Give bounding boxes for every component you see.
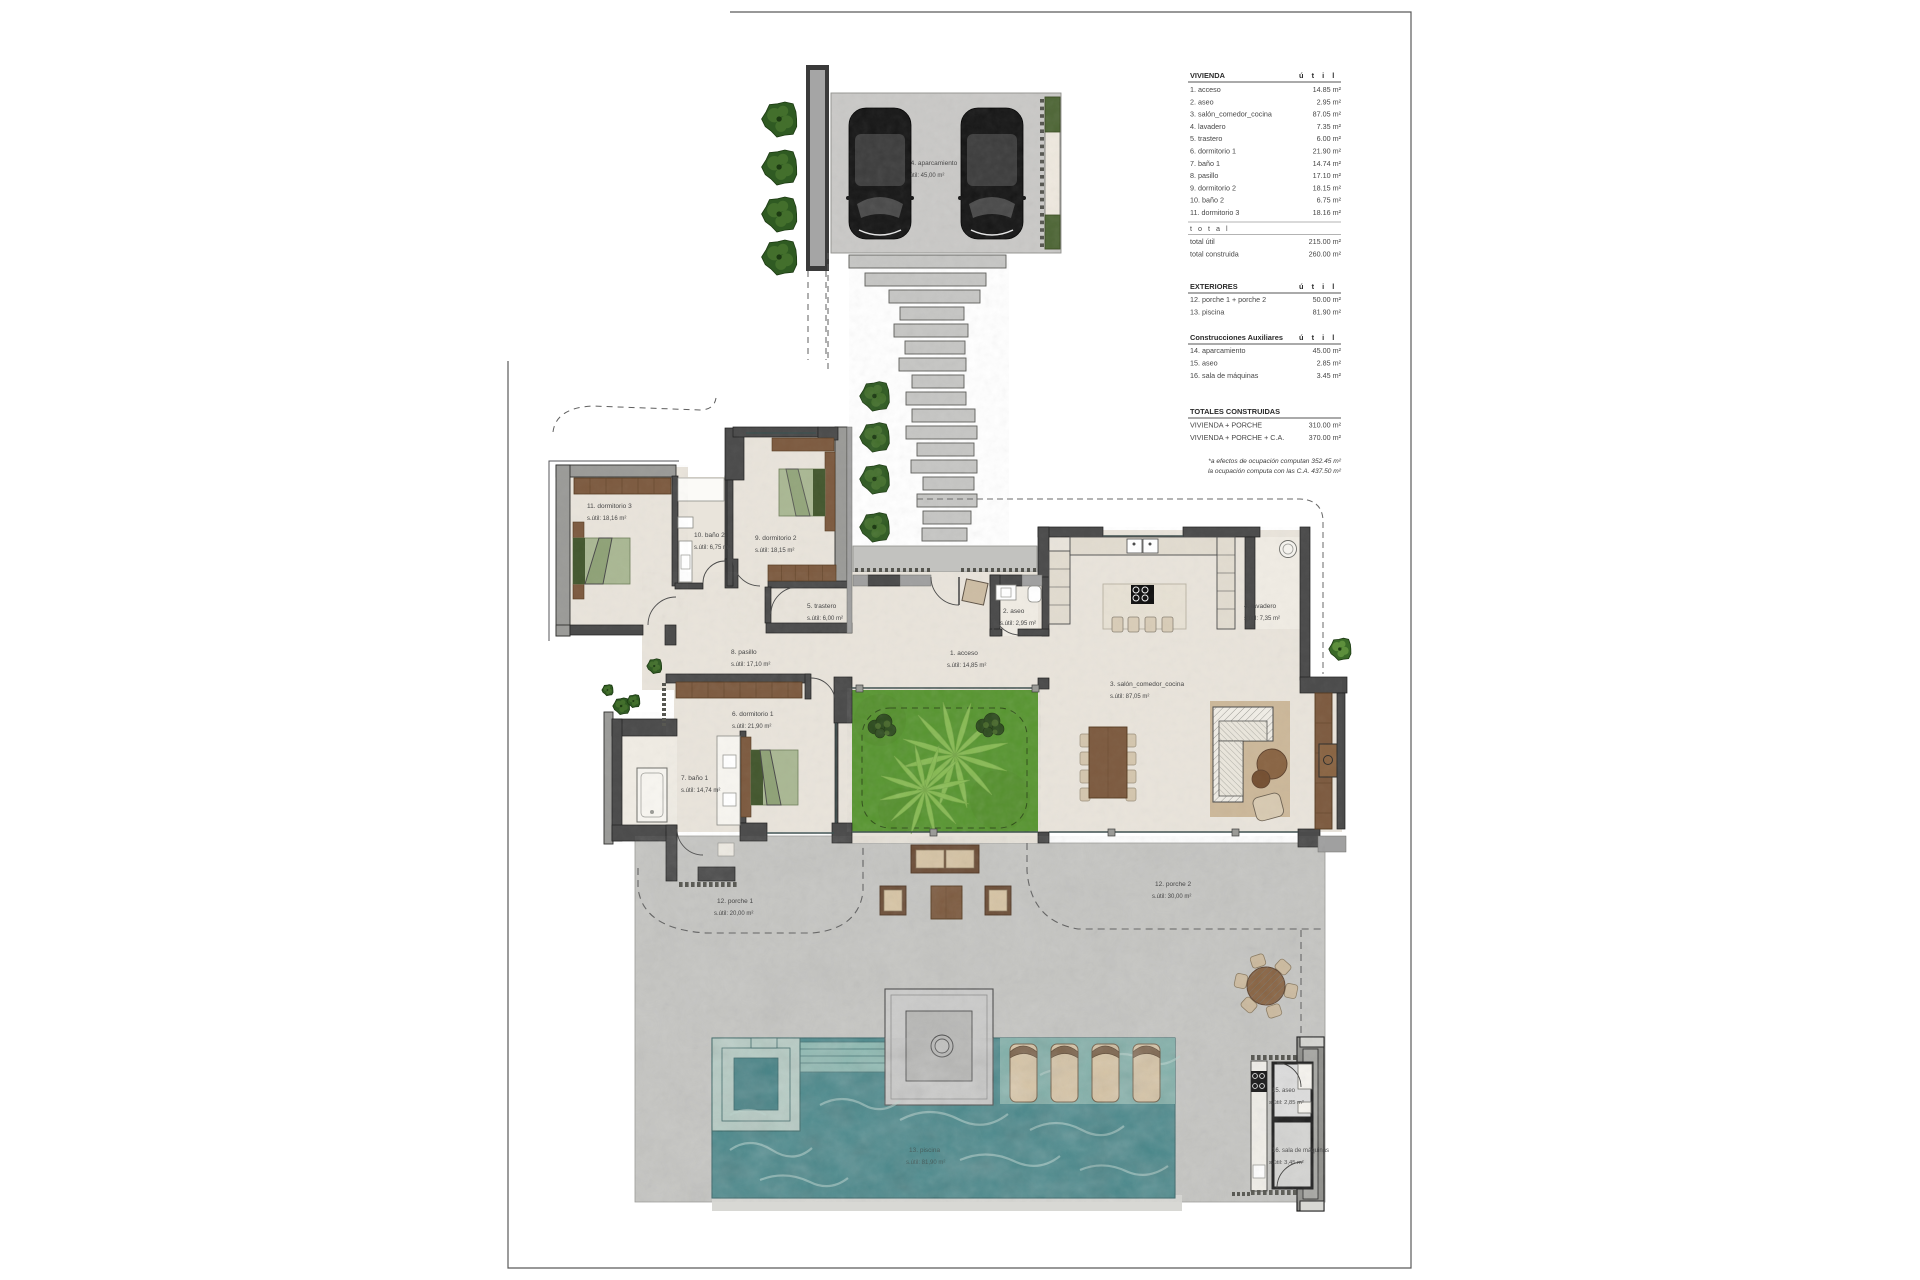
svg-text:s.útil: 18,16 m²: s.útil: 18,16 m² [587, 516, 626, 522]
svg-text:6.75 m²: 6.75 m² [1317, 196, 1342, 205]
svg-text:14.74 m²: 14.74 m² [1313, 159, 1342, 168]
svg-text:s.útil: 6,75 m²: s.útil: 6,75 m² [694, 545, 730, 551]
svg-text:87.05 m²: 87.05 m² [1313, 110, 1342, 119]
svg-text:1. acceso: 1. acceso [1190, 85, 1221, 94]
svg-text:Construcciones Auxiliares: Construcciones Auxiliares [1190, 333, 1283, 342]
svg-text:16. sala de máquinas: 16. sala de máquinas [1190, 371, 1259, 380]
svg-text:7. baño 1: 7. baño 1 [1190, 159, 1220, 168]
svg-text:6. dormitorio 1: 6. dormitorio 1 [732, 711, 774, 718]
svg-text:s.útil: 2,95 m²: s.útil: 2,95 m² [1000, 621, 1036, 627]
svg-text:14. aparcamiento: 14. aparcamiento [1190, 346, 1246, 355]
svg-text:11. dormitorio 3: 11. dormitorio 3 [587, 503, 632, 510]
svg-text:1. acceso: 1. acceso [950, 650, 978, 657]
svg-text:ú t i l: ú t i l [1299, 282, 1337, 291]
svg-text:9. dormitorio 2: 9. dormitorio 2 [1190, 183, 1236, 192]
svg-text:7. baño 1: 7. baño 1 [681, 775, 708, 782]
svg-text:ú t i l: ú t i l [1299, 71, 1337, 80]
svg-text:10. baño 2: 10. baño 2 [1190, 196, 1224, 205]
svg-text:VIVIENDA + PORCHE: VIVIENDA + PORCHE [1190, 421, 1262, 430]
svg-text:4. lavadero: 4. lavadero [1190, 122, 1226, 131]
svg-text:total construida: total construida [1190, 250, 1239, 259]
svg-text:260.00 m²: 260.00 m² [1309, 250, 1342, 259]
svg-text:7.35 m²: 7.35 m² [1317, 122, 1342, 131]
svg-text:3. salón_comedor_cocina: 3. salón_comedor_cocina [1110, 681, 1184, 688]
svg-text:s.útil: 14,85 m²: s.útil: 14,85 m² [947, 663, 986, 669]
svg-text:11. dormitorio 3: 11. dormitorio 3 [1190, 208, 1239, 217]
svg-text:8. pasillo: 8. pasillo [1190, 171, 1218, 180]
svg-text:6.00 m²: 6.00 m² [1317, 134, 1342, 143]
svg-text:la ocupación computa con las C: la ocupación computa con las C.A. 437.50… [1208, 468, 1342, 475]
svg-text:12. porche 1 + porche 2: 12. porche 1 + porche 2 [1190, 295, 1266, 304]
svg-text:TOTALES CONSTRUIDAS: TOTALES CONSTRUIDAS [1190, 407, 1280, 416]
svg-text:t o t a l: t o t a l [1190, 224, 1230, 233]
svg-text:VIVIENDA: VIVIENDA [1190, 71, 1226, 80]
svg-text:5. trastero: 5. trastero [1190, 134, 1222, 143]
svg-text:EXTERIORES: EXTERIORES [1190, 282, 1238, 291]
svg-text:s.útil: 18,15 m²: s.útil: 18,15 m² [755, 548, 794, 554]
svg-text:9. dormitorio 2: 9. dormitorio 2 [755, 535, 797, 542]
svg-text:14.85 m²: 14.85 m² [1313, 85, 1342, 94]
svg-text:6. dormitorio 1: 6. dormitorio 1 [1190, 147, 1236, 156]
svg-text:s.útil: 6,00 m²: s.útil: 6,00 m² [807, 616, 843, 622]
svg-text:s.útil: 20,00 m²: s.útil: 20,00 m² [714, 911, 753, 917]
svg-text:total útil: total útil [1190, 237, 1215, 246]
svg-text:18.16 m²: 18.16 m² [1313, 208, 1342, 217]
svg-text:12. porche 2: 12. porche 2 [1155, 881, 1192, 888]
svg-text:370.00 m²: 370.00 m² [1309, 433, 1342, 442]
svg-text:3.45 m²: 3.45 m² [1317, 371, 1342, 380]
svg-text:3. salón_comedor_cocina: 3. salón_comedor_cocina [1190, 110, 1272, 119]
svg-text:15. aseo: 15. aseo [1190, 359, 1218, 368]
svg-text:ú t i l: ú t i l [1299, 333, 1337, 342]
svg-text:2. aseo: 2. aseo [1003, 608, 1025, 615]
svg-text:81.90 m²: 81.90 m² [1313, 308, 1342, 317]
svg-text:s.útil: 87,05 m²: s.útil: 87,05 m² [1110, 694, 1149, 700]
svg-text:VIVIENDA + PORCHE + C.A.: VIVIENDA + PORCHE + C.A. [1190, 433, 1284, 442]
svg-text:310.00 m²: 310.00 m² [1309, 421, 1342, 430]
svg-text:21.90 m²: 21.90 m² [1313, 147, 1342, 156]
svg-text:10. baño 2: 10. baño 2 [694, 532, 725, 539]
svg-text:s.útil: 7,35 m²: s.útil: 7,35 m² [1244, 616, 1280, 622]
svg-text:*a efectos de ocupación comput: *a efectos de ocupación computan 352.45 … [1208, 458, 1341, 465]
svg-text:17.10 m²: 17.10 m² [1313, 171, 1342, 180]
svg-text:50.00 m²: 50.00 m² [1313, 295, 1342, 304]
svg-text:8. pasillo: 8. pasillo [731, 649, 757, 656]
svg-text:2. aseo: 2. aseo [1190, 97, 1214, 106]
svg-text:2.85 m²: 2.85 m² [1317, 359, 1342, 368]
svg-text:13. piscina: 13. piscina [1190, 308, 1224, 317]
svg-text:s.útil: 14,74 m²: s.útil: 14,74 m² [681, 788, 720, 794]
svg-text:s.útil: 17,10 m²: s.útil: 17,10 m² [731, 662, 770, 668]
svg-text:s.útil: 21,90 m²: s.útil: 21,90 m² [732, 724, 771, 730]
svg-text:5. trastero: 5. trastero [807, 603, 837, 610]
svg-text:215.00 m²: 215.00 m² [1309, 237, 1342, 246]
svg-text:45.00 m²: 45.00 m² [1313, 346, 1342, 355]
svg-text:12. porche 1: 12. porche 1 [717, 898, 754, 905]
svg-text:18.15 m²: 18.15 m² [1313, 183, 1342, 192]
svg-text:4. lavadero: 4. lavadero [1244, 603, 1277, 610]
svg-text:2.95 m²: 2.95 m² [1317, 97, 1342, 106]
svg-text:s.útil: 30,00 m²: s.útil: 30,00 m² [1152, 894, 1191, 900]
